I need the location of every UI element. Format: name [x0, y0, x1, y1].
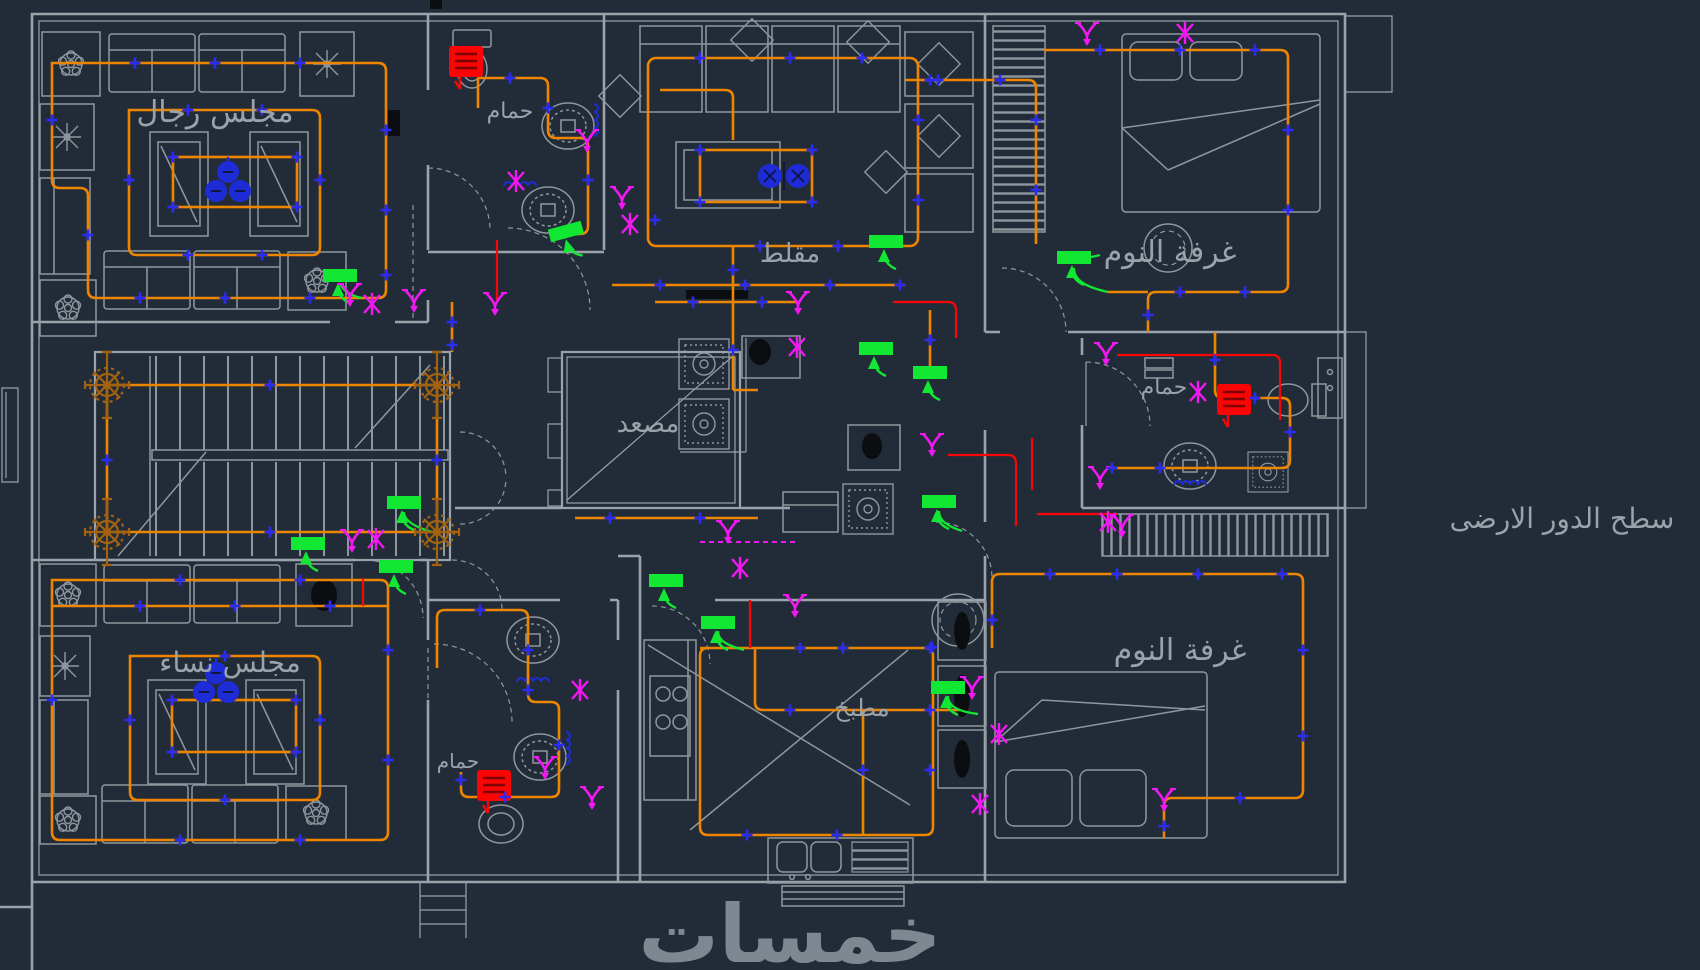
room-label-bathroom-top: حمام — [487, 99, 534, 124]
room-label-majlis-men: مجلس رجال — [136, 95, 293, 130]
furniture-hall — [365, 268, 1066, 664]
light-fixture-symbols — [338, 22, 1206, 815]
furniture-bedroom-bottom — [932, 514, 1328, 838]
room-label-bedroom-top: غرفة النوم — [1104, 235, 1237, 270]
room-label-elevator: مصعد — [617, 409, 680, 439]
room-label-bathroom-bottom: حمام — [437, 749, 479, 773]
watermark: خمسات — [638, 888, 941, 970]
wiring-red — [363, 240, 1280, 648]
floor-plan-canvas: مجلس رجال حمام مقلط غرفة النوم مصعد حمام… — [0, 0, 1700, 970]
staircase — [95, 352, 450, 560]
floor-caption: سطح الدور الارضى — [1450, 502, 1675, 535]
room-label-bathroom-right: حمام — [1141, 375, 1188, 400]
fixtures-bathroom-bottom — [428, 617, 570, 843]
room-label-bedroom-bottom: غرفة النوم — [1114, 633, 1247, 668]
room-label-kitchen: مطبخ — [834, 694, 889, 722]
room-label-muqallat: مقلط — [760, 239, 820, 269]
room-label-majlis-women: مجلس نساء — [159, 646, 300, 679]
cad-floor-plan: مجلس رجال حمام مقلط غرفة النوم مصعد حمام… — [0, 0, 1700, 970]
